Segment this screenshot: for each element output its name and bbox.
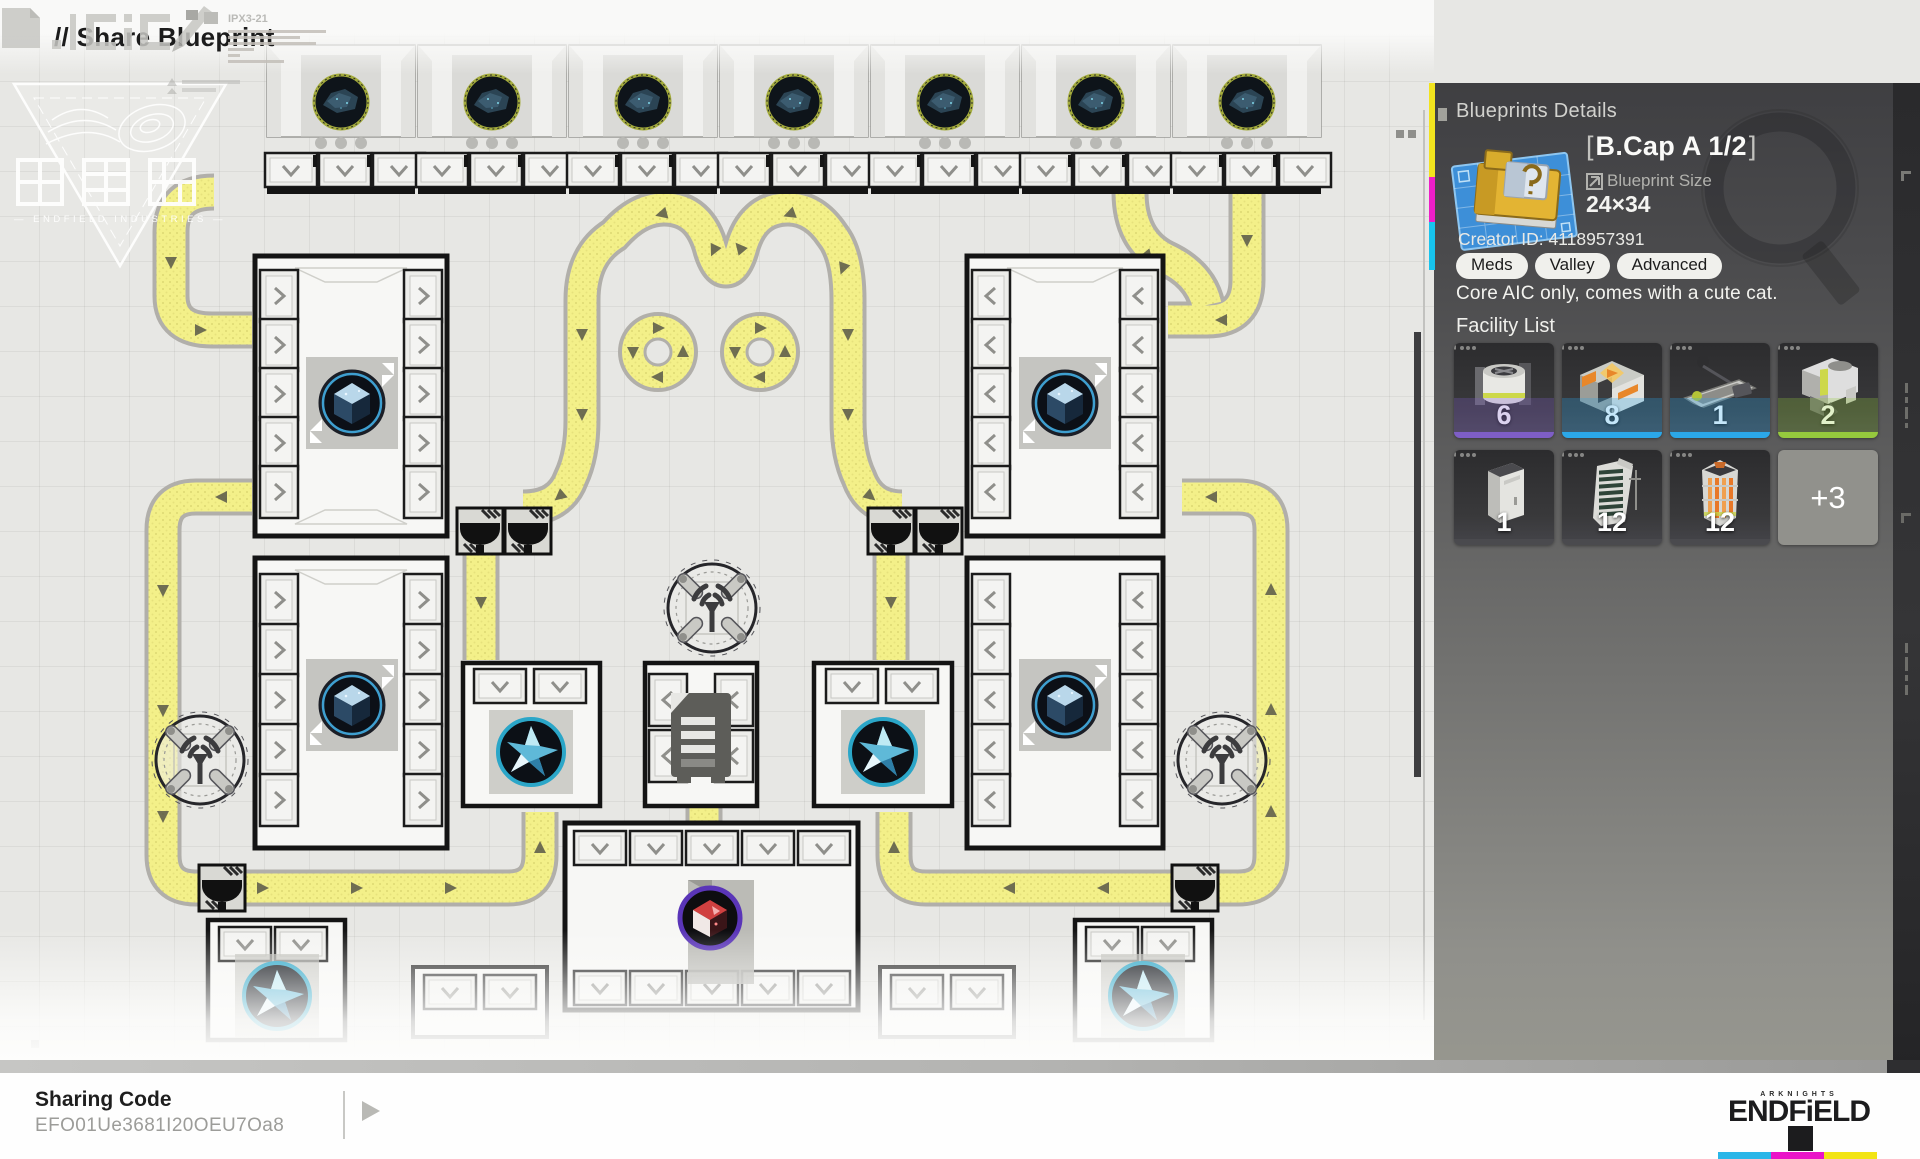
processor-building-right — [814, 663, 952, 806]
facility-grid: 6 8 — [1454, 343, 1882, 545]
sharing-code-label: Sharing Code — [35, 1088, 172, 1112]
production-building-right-top — [967, 256, 1163, 536]
blueprint-map-viewport[interactable]: — ENDFIELD INDUSTRIES — // Share Bluepri… — [0, 0, 1434, 1072]
small-building-bottom-left — [208, 920, 345, 1040]
processor-building-left — [463, 663, 600, 806]
bottom-bar: Sharing Code EFO01Ue3681I20OEU7Oa8 ARKNI… — [0, 1073, 1920, 1159]
size-icon — [1586, 173, 1603, 190]
production-building-left-bottom — [255, 558, 447, 848]
blueprint-description: Core AIC only, comes with a cute cat. — [1456, 283, 1778, 305]
facility-more-button[interactable]: +3 — [1778, 450, 1878, 545]
facility-cell-mixer[interactable]: 6 — [1454, 343, 1554, 438]
crystal-icon — [235, 954, 319, 1038]
copy-code-arrow-button[interactable] — [362, 1101, 380, 1121]
share-blueprint-screen: — ENDFIELD INDUSTRIES — // Share Bluepri… — [0, 0, 1920, 1159]
crystal-icon — [489, 710, 573, 794]
section-title: Blueprints Details — [1456, 100, 1617, 123]
brand-color-bar — [1718, 1152, 1877, 1159]
facility-cell-press[interactable]: 1 — [1670, 343, 1770, 438]
small-building-bottom-right — [1075, 920, 1212, 1040]
aic-core-icon — [680, 880, 754, 984]
core-building — [565, 823, 858, 1010]
ore-cube-icon — [306, 659, 398, 751]
blueprint-size-row: Blueprint Size — [1586, 171, 1712, 191]
storage-cabinet-icon — [671, 693, 731, 783]
panel-side-rail — [1893, 83, 1920, 1072]
blueprint-title: [B.Cap A 1/2] — [1584, 131, 1758, 162]
panel-stripe-cyan — [1429, 222, 1435, 270]
crystal-icon — [1101, 954, 1185, 1038]
low-building-bottom-midleft — [413, 967, 547, 1037]
facility-cell-furnace[interactable]: 12 — [1670, 450, 1770, 545]
bracket-right: ] — [1747, 131, 1759, 161]
blueprint-size-value: 24×34 — [1586, 191, 1651, 218]
low-building-bottom-midright — [880, 967, 1014, 1037]
conveyor-roundabout — [620, 314, 798, 390]
endfield-logo: ARKNIGHTS ENDFiELD — [1718, 1091, 1880, 1152]
production-building-left-top — [255, 256, 447, 536]
crystal-icon — [841, 710, 925, 794]
blueprint-details-panel: Blueprints Details [B.Cap A 1/ — [1434, 83, 1920, 1072]
facility-cell-fin-tower[interactable]: 12 — [1562, 450, 1662, 545]
facility-cell-cabinet[interactable]: 1 — [1454, 450, 1554, 545]
production-building-right-bottom — [967, 558, 1163, 848]
bracket-left: [ — [1584, 131, 1596, 161]
sharing-code-value: EFO01Ue3681I20OEU7Oa8 — [35, 1115, 284, 1137]
map-scrollbar-thumb[interactable] — [1414, 332, 1421, 777]
facility-cell-smelter[interactable]: 8 — [1562, 343, 1662, 438]
endfield-industries-watermark: — ENDFIELD INDUSTRIES — — [14, 84, 226, 266]
ore-cube-icon — [1019, 357, 1111, 449]
facility-cell-hoist[interactable]: 2 — [1778, 343, 1878, 438]
tag-valley[interactable]: Valley — [1535, 253, 1610, 279]
storage-building-center — [645, 663, 757, 806]
brand-block-mark — [1788, 1126, 1813, 1151]
ore-cube-icon — [1019, 659, 1111, 751]
warning-deco-icon — [166, 76, 286, 94]
ore-cube-icon — [306, 357, 398, 449]
deco-code-label: IPX3-21 — [228, 13, 268, 25]
signal-antenna-icon — [664, 560, 760, 656]
tag-meds[interactable]: Meds — [1456, 253, 1528, 279]
panel-stripe-magenta — [1429, 177, 1435, 222]
divider — [343, 1091, 345, 1139]
panel-stripe-yellow — [1429, 83, 1435, 177]
stamp-deco-icons: IPX3-21 — [0, 0, 330, 66]
map-scrollbar-track — [1423, 110, 1425, 1020]
brand-name: ENDFiELD — [1728, 1098, 1870, 1126]
facility-list-heading: Facility List — [1456, 315, 1555, 338]
bottom-edge-strip — [0, 1060, 1920, 1073]
watermark-subtitle: — ENDFIELD INDUSTRIES — — [14, 214, 226, 225]
tag-list: Meds Valley Advanced — [1456, 253, 1722, 279]
blueprint-map-canvas: — ENDFIELD INDUSTRIES — — [0, 0, 1434, 1072]
tag-advanced[interactable]: Advanced — [1617, 253, 1723, 279]
section-bullet — [1438, 108, 1447, 121]
creator-id: Creator ID: 4118957391 — [1458, 229, 1644, 250]
